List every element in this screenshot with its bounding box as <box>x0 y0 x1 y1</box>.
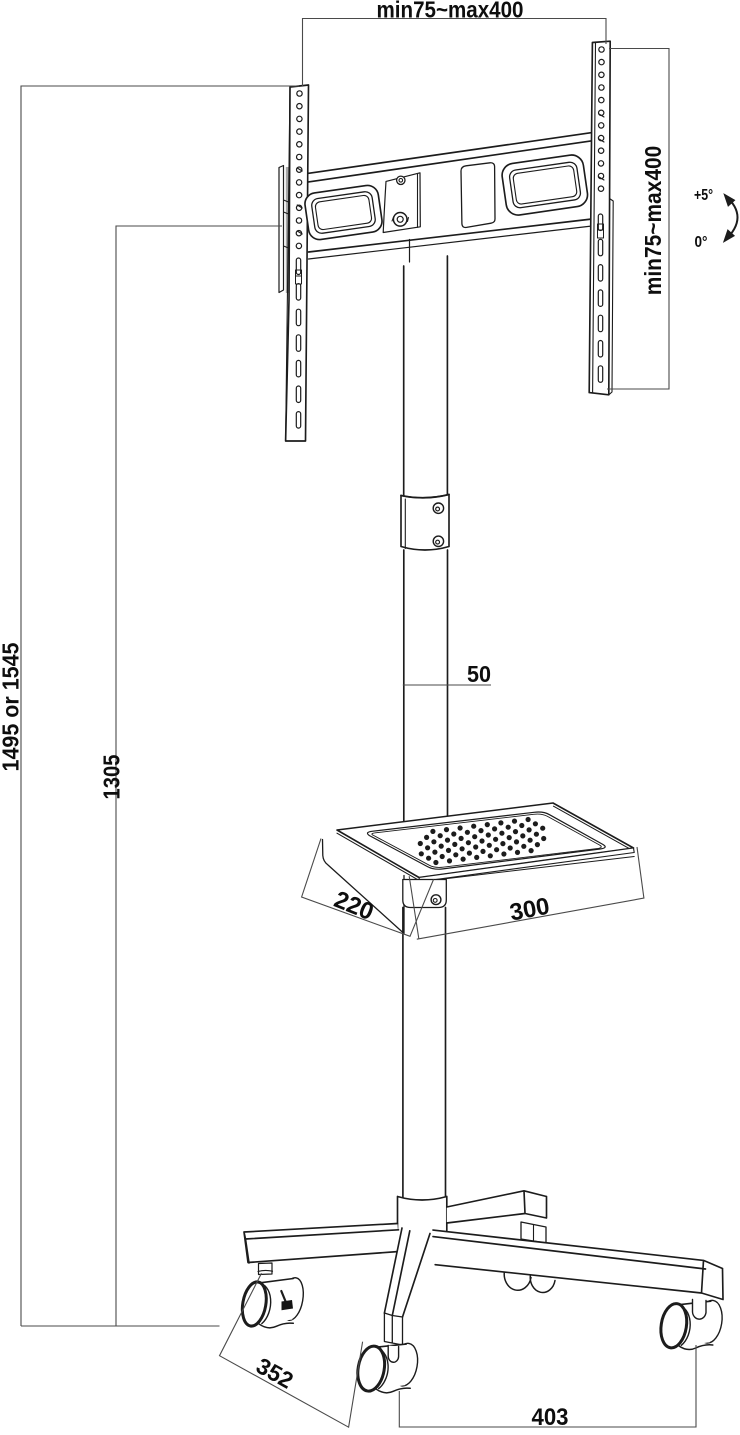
svg-text:1495 or 1545: 1495 or 1545 <box>0 642 24 771</box>
svg-text:+5°: +5° <box>694 187 713 204</box>
svg-text:0°: 0° <box>695 234 708 251</box>
svg-text:1305: 1305 <box>99 754 125 799</box>
svg-text:403: 403 <box>532 1404 569 1430</box>
svg-text:min75~max400: min75~max400 <box>640 146 666 296</box>
svg-text:min75~max400: min75~max400 <box>377 0 524 23</box>
svg-text:50: 50 <box>467 661 491 687</box>
